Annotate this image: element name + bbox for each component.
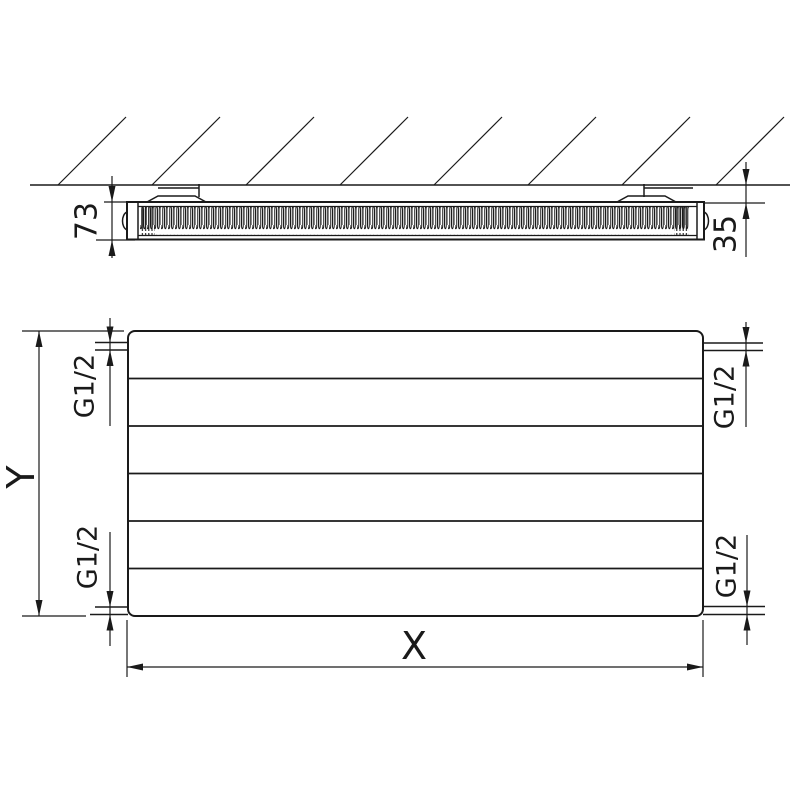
arrowhead [107,327,114,343]
arrowhead [744,615,751,631]
dimension-wall-gap: 35 [704,162,765,257]
wall-section [30,117,790,185]
arrowhead [744,591,751,607]
arrowhead [109,240,116,256]
connection-stub-bottom-left [90,607,128,615]
dimension-connection-bottom-right: G1/2 [712,534,751,645]
connection-stub-top-right [703,343,763,351]
arrowhead [109,186,116,202]
arrowhead [36,331,43,347]
height-label: Y [0,465,43,490]
dimension-depth: 73 [70,176,136,258]
dimension-connection-bottom-left: G1/2 [73,525,114,646]
dimension-height: Y [0,331,124,616]
wall-hatch-lines [58,117,784,185]
arrowhead [107,615,114,631]
arrowhead [743,203,750,219]
radiator-front-view: G1/2 G1/2 G1/2 G1/2 Y [0,318,765,677]
arrowhead [743,351,750,367]
wall-gap-label: 35 [709,215,744,253]
convector-fins [140,207,689,236]
wall-bracket-left [147,184,206,202]
radiator-body-section [123,202,709,240]
arrowhead [36,600,43,616]
dimension-connection-top-left: G1/2 [70,318,114,426]
connection-label-bottom-left: G1/2 [73,525,104,589]
water-channel-left [140,207,155,236]
connection-stub-bottom-right [703,607,765,615]
radiator-section-view: 73 35 [70,162,766,258]
arrowhead [687,664,703,671]
connection-label-top-left: G1/2 [70,354,101,418]
connection-label-bottom-right: G1/2 [712,534,743,598]
arrowhead [107,591,114,607]
drawing-svg: 73 35 [0,0,800,800]
arrowhead [743,327,750,343]
dimension-connection-top-right: G1/2 [710,322,750,429]
width-label: X [401,624,427,668]
panel-groove-lines [128,379,703,569]
connection-label-top-right: G1/2 [710,365,741,429]
connection-stub-top-left [95,343,128,351]
wall-bracket-right [617,184,693,202]
water-channel-right [674,207,689,236]
radiator-technical-drawing: 73 35 [0,0,800,800]
depth-label: 73 [70,202,105,240]
arrowhead [127,664,143,671]
dimension-width: X [127,620,703,677]
arrowhead [743,169,750,185]
arrowhead [107,350,114,366]
